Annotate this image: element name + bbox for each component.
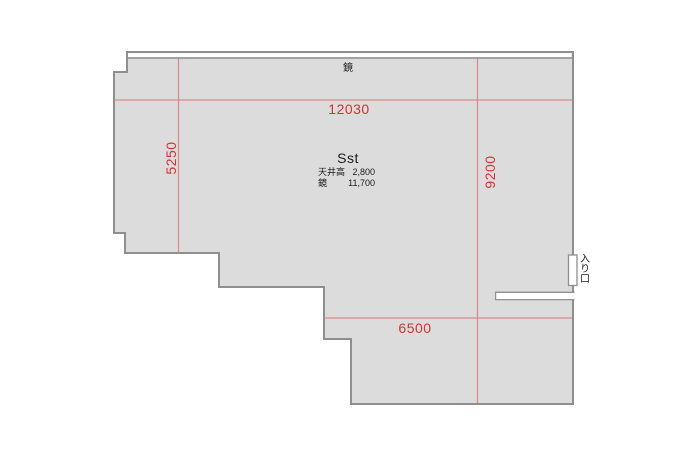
- info-value: 11,700: [348, 178, 375, 189]
- info-value: 2,800: [352, 167, 375, 178]
- dimension-label-left-height: 5250: [163, 118, 179, 198]
- entrance-door: [569, 255, 578, 286]
- dimension-label-top-width: 12030: [284, 101, 414, 117]
- floorplan-canvas: 鏡 12030 5250 9200 6500 Sst 天井高 2,800 鏡 1…: [0, 0, 700, 465]
- room-name: Sst: [298, 150, 398, 166]
- mirror-wall-label: 鏡: [318, 59, 378, 74]
- dimension-label-bottom-width: 6500: [355, 320, 475, 336]
- entrance-label: 入り口: [577, 253, 588, 283]
- info-label: 天井高: [318, 167, 345, 178]
- info-label: 鏡: [318, 178, 327, 189]
- info-row-mirror: 鏡 11,700: [318, 178, 375, 189]
- dimension-label-right-height: 9200: [482, 132, 498, 212]
- room-info: 天井高 2,800 鏡 11,700: [318, 167, 375, 189]
- info-row-ceiling-height: 天井高 2,800: [318, 167, 375, 178]
- entrance-opening: [495, 292, 575, 300]
- mirror-wall-gap: [128, 53, 572, 57]
